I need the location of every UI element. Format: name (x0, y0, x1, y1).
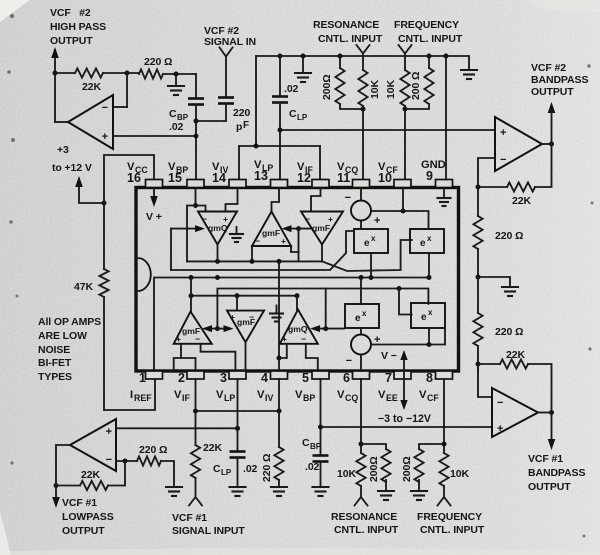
svg-text:CNTL. INPUT: CNTL. INPUT (420, 524, 485, 536)
svg-text:V +: V + (146, 211, 162, 223)
svg-text:x: x (362, 309, 367, 318)
svg-text:BP: BP (303, 393, 315, 403)
svg-text:−: − (301, 334, 306, 344)
svg-text:+: + (230, 312, 235, 322)
svg-text:LP: LP (221, 468, 232, 477)
svg-text:C: C (213, 463, 221, 475)
svg-text:RESONANCE: RESONANCE (331, 511, 397, 523)
svg-text:220 Ω: 220 Ω (139, 444, 167, 456)
svg-text:OUTPUT: OUTPUT (50, 35, 93, 47)
svg-text:C: C (302, 437, 310, 449)
svg-text:CNTL. INPUT: CNTL. INPUT (318, 33, 383, 45)
svg-text:V: V (419, 389, 427, 401)
svg-text:CF: CF (427, 393, 439, 403)
svg-text:BANDPASS: BANDPASS (531, 74, 588, 86)
svg-text:220: 220 (233, 107, 250, 119)
svg-text:V: V (257, 389, 265, 401)
svg-text:16: 16 (127, 171, 141, 185)
svg-text:+: + (500, 127, 506, 139)
svg-text:10K: 10K (337, 468, 356, 480)
svg-text:NOISE: NOISE (38, 344, 70, 356)
svg-text:GND: GND (421, 159, 446, 171)
svg-text:RESONANCE: RESONANCE (313, 19, 379, 31)
svg-text:OUTPUT: OUTPUT (528, 481, 571, 493)
svg-text:C: C (169, 108, 177, 120)
svg-text:CQ: CQ (345, 393, 358, 403)
svg-text:CNTL. INPUT: CNTL. INPUT (398, 33, 463, 45)
svg-text:ARE LOW: ARE LOW (38, 330, 87, 342)
svg-text:200Ω: 200Ω (401, 456, 413, 482)
svg-text:−: − (305, 214, 310, 224)
svg-text:200Ω: 200Ω (321, 74, 333, 100)
svg-text:220 Ω: 220 Ω (144, 56, 172, 68)
svg-text:gmF: gmF (237, 317, 255, 327)
svg-text:VCF #2: VCF #2 (531, 62, 566, 74)
svg-text:All OP AMPS: All OP AMPS (38, 316, 101, 328)
svg-text:e: e (420, 238, 426, 249)
svg-text:.02: .02 (305, 461, 320, 473)
svg-text:to +12 V: to +12 V (52, 162, 92, 174)
svg-text:p: p (236, 121, 242, 133)
svg-text:SIGNAL INPUT: SIGNAL INPUT (172, 525, 245, 537)
svg-text:gmF: gmF (312, 223, 330, 233)
svg-text:11: 11 (337, 171, 350, 185)
svg-text:220 Ω: 220 Ω (261, 454, 273, 482)
svg-text:CNTL. INPUT: CNTL. INPUT (334, 524, 399, 536)
svg-text:10: 10 (378, 171, 392, 185)
svg-text:V: V (295, 389, 303, 401)
svg-text:200 Ω: 200 Ω (410, 72, 422, 100)
svg-text:IF: IF (182, 393, 190, 403)
svg-text:+3: +3 (57, 144, 69, 156)
svg-text:LP: LP (224, 393, 235, 403)
svg-text:VCF #2: VCF #2 (50, 7, 91, 19)
svg-text:V −: V − (381, 350, 397, 362)
svg-text:−3 to −12V: −3 to −12V (378, 413, 431, 425)
svg-text:22K: 22K (82, 81, 101, 93)
svg-text:gmQ: gmQ (288, 324, 308, 334)
svg-text:−: − (497, 397, 503, 409)
svg-text:VCF #1: VCF #1 (172, 512, 207, 524)
svg-text:TYPES: TYPES (38, 371, 72, 383)
svg-text:V: V (337, 389, 345, 401)
svg-text:V: V (174, 389, 182, 401)
svg-text:.02: .02 (169, 121, 184, 133)
svg-text:14: 14 (212, 171, 226, 185)
svg-text:C: C (289, 108, 297, 120)
svg-text:220 Ω: 220 Ω (495, 230, 523, 242)
svg-text:5: 5 (302, 371, 309, 385)
svg-text:x: x (428, 308, 433, 317)
svg-text:FREQUENCY: FREQUENCY (417, 511, 482, 523)
svg-text:22K: 22K (81, 469, 100, 481)
svg-text:gmF: gmF (182, 326, 200, 336)
svg-text:2: 2 (178, 371, 185, 385)
svg-text:47K: 47K (74, 281, 93, 293)
svg-text:F: F (243, 120, 249, 131)
svg-text:10K: 10K (385, 79, 397, 98)
svg-text:VCF #1: VCF #1 (62, 497, 97, 509)
svg-text:22K: 22K (506, 349, 525, 361)
svg-text:22K: 22K (512, 195, 531, 207)
svg-text:10K: 10K (450, 468, 469, 480)
svg-text:.02: .02 (284, 83, 299, 95)
svg-text:220 Ω: 220 Ω (495, 326, 523, 338)
svg-text:−: − (202, 214, 207, 224)
svg-text:7: 7 (385, 371, 392, 385)
svg-text:VCF #1: VCF #1 (528, 453, 563, 465)
svg-text:+: + (106, 426, 112, 438)
svg-text:3: 3 (220, 371, 227, 385)
svg-text:+: + (102, 131, 108, 143)
svg-text:+: + (374, 215, 380, 227)
svg-text:9: 9 (426, 169, 433, 183)
svg-text:REF: REF (134, 393, 152, 403)
svg-text:gmF: gmF (262, 228, 280, 238)
svg-text:HIGH PASS: HIGH PASS (50, 21, 106, 33)
svg-text:LP: LP (297, 113, 308, 122)
svg-text:.02: .02 (243, 463, 258, 475)
svg-text:22K: 22K (203, 442, 222, 454)
svg-text:OUTPUT: OUTPUT (531, 86, 574, 98)
svg-text:BANDPASS: BANDPASS (528, 467, 585, 479)
svg-text:−: − (345, 192, 351, 204)
svg-text:SIGNAL IN: SIGNAL IN (204, 36, 256, 48)
svg-text:4: 4 (261, 371, 268, 385)
svg-text:e: e (355, 313, 361, 324)
svg-text:+: + (281, 236, 286, 246)
svg-text:LOWPASS: LOWPASS (62, 511, 114, 523)
svg-text:V: V (378, 389, 386, 401)
svg-text:1: 1 (139, 371, 146, 385)
svg-text:e: e (421, 312, 427, 323)
svg-text:200Ω: 200Ω (368, 456, 380, 482)
svg-text:OUTPUT: OUTPUT (62, 525, 105, 537)
svg-text:+: + (497, 423, 503, 435)
svg-text:13: 13 (254, 169, 268, 183)
svg-text:FREQUENCY: FREQUENCY (394, 19, 459, 31)
svg-text:−: − (102, 102, 108, 114)
svg-text:10K: 10K (369, 79, 381, 98)
svg-text:+: + (176, 334, 181, 344)
svg-text:12: 12 (297, 171, 311, 185)
svg-text:x: x (427, 234, 432, 243)
svg-text:8: 8 (426, 371, 433, 385)
svg-text:BP: BP (310, 442, 322, 451)
svg-text:V: V (216, 389, 224, 401)
svg-text:EE: EE (386, 393, 398, 403)
svg-text:−: − (106, 454, 112, 466)
svg-text:15: 15 (168, 171, 182, 185)
svg-text:−: − (346, 355, 352, 367)
svg-text:x: x (371, 234, 376, 243)
svg-text:BI-FET: BI-FET (38, 357, 72, 369)
svg-text:+: + (282, 334, 287, 344)
svg-text:I: I (130, 389, 133, 401)
svg-text:e: e (364, 238, 370, 249)
svg-text:gmQ: gmQ (208, 223, 228, 233)
svg-text:−: − (500, 154, 506, 166)
svg-text:IV: IV (265, 393, 273, 403)
svg-text:−: − (255, 236, 260, 246)
svg-text:6: 6 (343, 371, 350, 385)
